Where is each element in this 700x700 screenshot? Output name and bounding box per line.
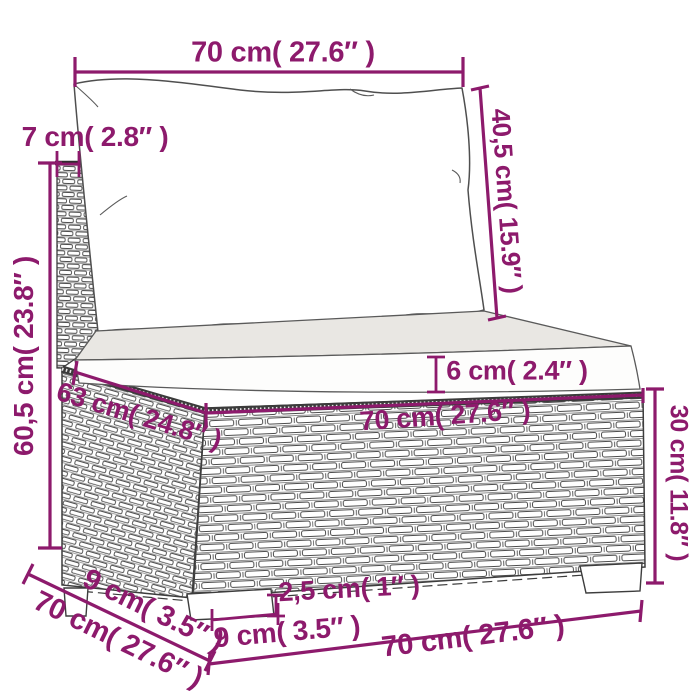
cushion-height-label: 6 cm( 2.4″ ) bbox=[446, 358, 587, 385]
back-thickness-label: 7 cm( 2.8″ ) bbox=[22, 123, 169, 151]
dim-base-height bbox=[646, 389, 664, 583]
dimension-diagram: 70 cm( 27.6″ ) 7 cm( 2.8″ ) 60,5 cm( 23.… bbox=[0, 0, 700, 700]
foot-front-right bbox=[580, 563, 642, 593]
base-height-label: 30 cm( 11.8″ ) bbox=[666, 405, 691, 561]
total-height-label: 60,5 cm( 23.8″ ) bbox=[10, 256, 38, 456]
top-width-label: 70 cm( 27.6″ ) bbox=[191, 39, 375, 68]
back-pillow bbox=[74, 79, 484, 332]
